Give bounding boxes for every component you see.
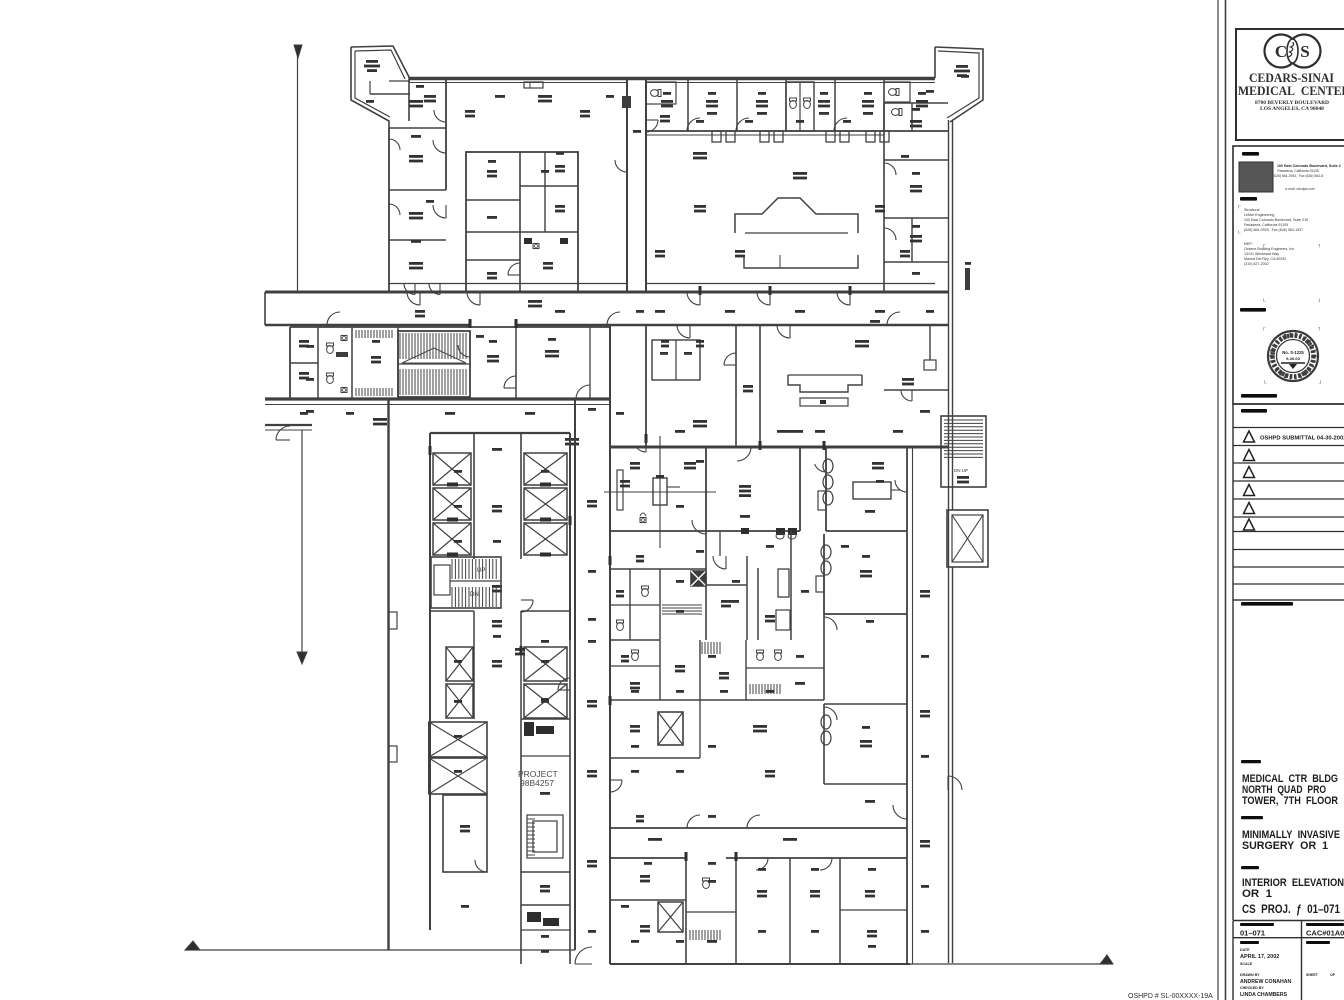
svg-text:13141 Windward Way: 13141 Windward Way — [1244, 252, 1279, 256]
svg-text:└: └ — [1263, 380, 1267, 387]
svg-text:C: C — [1275, 42, 1287, 61]
svg-text:OSHPD # SL-00XXXX-19A: OSHPD # SL-00XXXX-19A — [1128, 993, 1213, 1000]
svg-text:LeMar Engineering: LeMar Engineering — [1244, 213, 1274, 217]
svg-text:OSHPD SUBMITTAL 04-30-2002: OSHPD SUBMITTAL 04-30-2002 — [1260, 436, 1344, 442]
svg-text:DRAWN BY: DRAWN BY — [1240, 973, 1260, 977]
svg-text:Marina Del Rey, CA 90292: Marina Del Rey, CA 90292 — [1244, 257, 1286, 261]
svg-text:LOS ANGELES, CA 90048: LOS ANGELES, CA 90048 — [1260, 106, 1324, 112]
svg-text:ANDREW CONAHAN: ANDREW CONAHAN — [1240, 979, 1292, 985]
svg-text:DN UP: DN UP — [954, 468, 968, 473]
svg-text:└: └ — [1237, 230, 1241, 237]
svg-text:UP: UP — [477, 568, 485, 574]
svg-text:98B4257: 98B4257 — [520, 778, 554, 788]
svg-text:MEP:: MEP: — [1244, 242, 1253, 246]
svg-text:(626) 564-0925, Fax (626) 564: (626) 564-0925, Fax (626) 564-1937 — [1244, 228, 1303, 232]
svg-text:9-30-03: 9-30-03 — [1286, 356, 1301, 361]
svg-text:OR 1: OR 1 — [1242, 888, 1272, 900]
svg-text:LINDA CHAMBERS: LINDA CHAMBERS — [1240, 992, 1288, 998]
svg-text:└: └ — [1262, 298, 1266, 305]
svg-text:┘: ┘ — [1318, 380, 1323, 387]
svg-text:01–071: 01–071 — [1240, 929, 1265, 938]
svg-text:Structural: Structural — [1244, 208, 1260, 212]
svg-text:Ockene Building Engineers, Inc: Ockene Building Engineers, Inc — [1244, 247, 1294, 251]
svg-text:CS PROJ. ƒ 01–071: CS PROJ. ƒ 01–071 — [1242, 904, 1341, 916]
svg-text:SURGERY OR 1: SURGERY OR 1 — [1242, 840, 1328, 852]
svg-text:┐: ┐ — [1317, 243, 1322, 248]
svg-text:┐: ┐ — [1317, 326, 1322, 331]
svg-text:DN: DN — [470, 592, 479, 598]
svg-text:(310) 827-2002: (310) 827-2002 — [1244, 262, 1269, 266]
svg-text:┌: ┌ — [1262, 326, 1266, 331]
svg-text:Pasadena, California 91105: Pasadena, California 91105 — [1277, 169, 1319, 173]
svg-text:┌: ┌ — [1237, 204, 1241, 209]
svg-text:Pasadena, California 91105: Pasadena, California 91105 — [1244, 223, 1288, 227]
svg-text:CAC#01A00: CAC#01A00 — [1306, 929, 1344, 938]
svg-text:e-mail: cbsdpa.com: e-mail: cbsdpa.com — [1285, 187, 1315, 191]
svg-text:SHEET: SHEET — [1306, 973, 1319, 977]
svg-text:OF: OF — [1330, 973, 1336, 977]
svg-text:DATE: DATE — [1240, 948, 1250, 952]
svg-text:SCALE: SCALE — [1240, 962, 1253, 966]
svg-text:APRIL 17, 2002: APRIL 17, 2002 — [1240, 954, 1279, 960]
svg-text:CHECKED BY: CHECKED BY — [1240, 986, 1264, 990]
svg-text:S: S — [1300, 42, 1309, 61]
svg-text:MEDICAL CENTER: MEDICAL CENTER — [1238, 83, 1344, 98]
svg-text:┌: ┌ — [1262, 243, 1266, 248]
svg-text:No. S-1225: No. S-1225 — [1282, 350, 1304, 355]
svg-text:┘: ┘ — [1317, 298, 1322, 305]
svg-text:(626) 564-2944, Fax (626) 564: (626) 564-2944, Fax (626) 564-8 — [1273, 174, 1323, 178]
svg-text:100 East Colorado Boulevard, S: 100 East Colorado Boulevard, Suite 2 — [1277, 164, 1341, 168]
svg-text:100 East Colorado Boulevard, S: 100 East Colorado Boulevard, Suite 210 — [1244, 218, 1308, 222]
svg-text:TOWER, 7TH FLOOR: TOWER, 7TH FLOOR — [1242, 795, 1338, 807]
